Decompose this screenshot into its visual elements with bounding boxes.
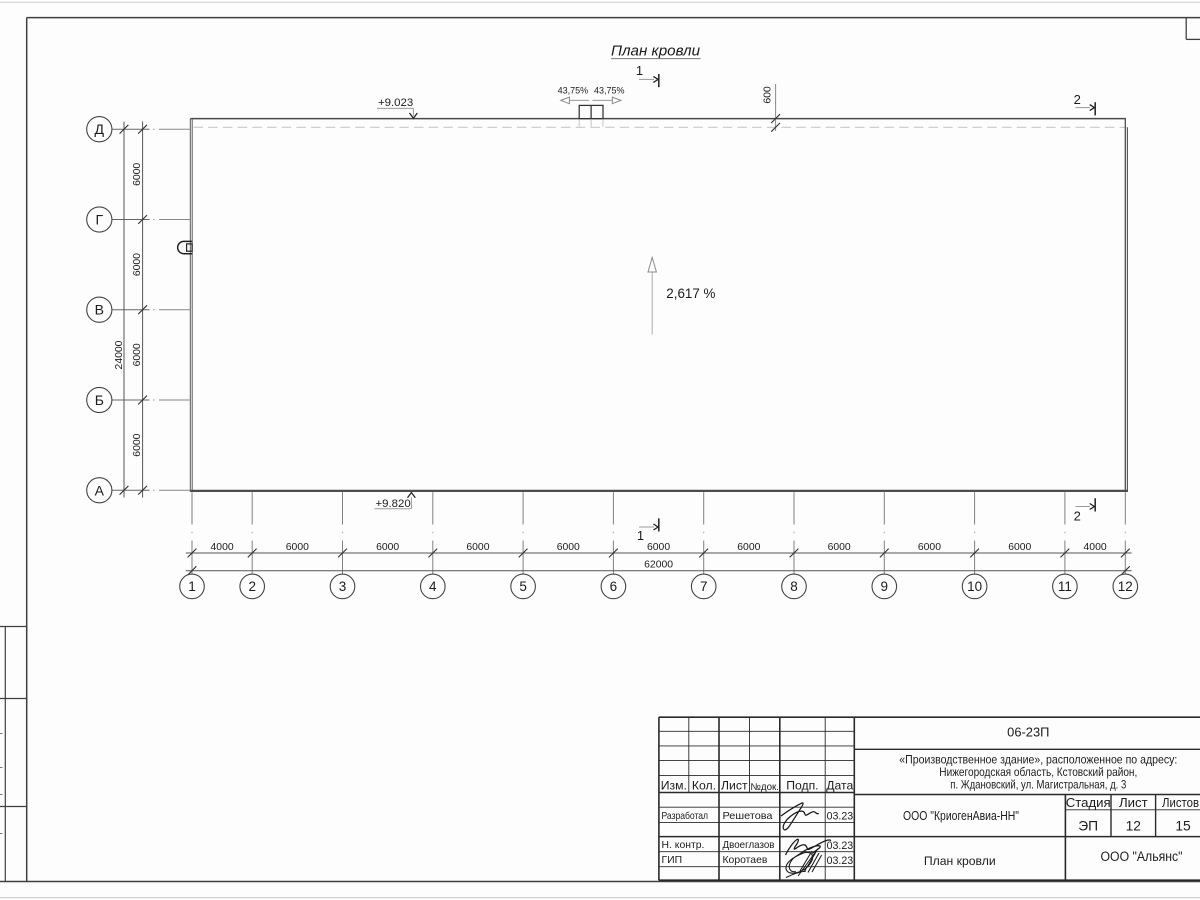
- svg-text:Решетова: Решетова: [723, 811, 773, 822]
- svg-text:12: 12: [1118, 579, 1133, 594]
- svg-text:Лист: Лист: [1119, 795, 1148, 810]
- svg-text:03.23: 03.23: [827, 855, 854, 867]
- svg-text:А: А: [95, 482, 105, 498]
- svg-text:9: 9: [881, 579, 889, 594]
- svg-text:2: 2: [248, 579, 256, 594]
- svg-text:12: 12: [1126, 819, 1141, 834]
- svg-text:03.23: 03.23: [827, 840, 854, 852]
- svg-text:6000: 6000: [286, 542, 309, 553]
- svg-text:Двоеглазов: Двоеглазов: [723, 840, 775, 851]
- svg-text:ООО "Альянс": ООО "Альянс": [1101, 849, 1183, 865]
- svg-text:6000: 6000: [647, 542, 670, 553]
- svg-text:Г: Г: [96, 212, 104, 228]
- svg-text:2: 2: [1074, 92, 1081, 107]
- svg-text:ГИП: ГИП: [662, 855, 683, 866]
- svg-text:6000: 6000: [1008, 542, 1031, 553]
- svg-text:План кровли: План кровли: [611, 43, 701, 60]
- svg-text:План кровли: План кровли: [924, 854, 996, 868]
- svg-text:43,75%: 43,75%: [594, 85, 625, 95]
- svg-text:8: 8: [790, 579, 798, 594]
- svg-text:Листов: Листов: [1162, 795, 1199, 810]
- svg-text:7: 7: [700, 579, 708, 594]
- svg-text:1: 1: [188, 579, 196, 594]
- svg-text:Разработал: Разработал: [662, 810, 709, 822]
- svg-text:1: 1: [637, 528, 644, 543]
- svg-text:Дата: Дата: [826, 778, 853, 792]
- svg-text:Коротаев: Коротаев: [723, 855, 768, 866]
- svg-text:43,75%: 43,75%: [558, 85, 589, 95]
- svg-text:+9.023: +9.023: [378, 97, 413, 109]
- svg-text:03.23: 03.23: [827, 811, 854, 823]
- svg-text:6: 6: [610, 579, 618, 594]
- svg-text:п. Ждановский, ул. Магистральн: п. Ждановский, ул. Магистральная, д. 3: [950, 777, 1126, 791]
- svg-text:10: 10: [967, 579, 982, 594]
- svg-text:2,617 %: 2,617 %: [666, 286, 715, 301]
- svg-text:ЭП: ЭП: [1078, 819, 1098, 834]
- svg-text:ООО "КриогенАвиа-НН": ООО "КриогенАвиа-НН": [903, 809, 1019, 823]
- svg-text:Д: Д: [95, 121, 105, 137]
- svg-text:В: В: [95, 302, 104, 318]
- svg-text:Б: Б: [95, 392, 104, 408]
- svg-text:15: 15: [1175, 819, 1191, 834]
- svg-text:6000: 6000: [132, 433, 143, 456]
- svg-text:+9.820: +9.820: [376, 498, 411, 510]
- svg-text:6000: 6000: [737, 542, 760, 553]
- svg-text:№док.: №док.: [750, 782, 779, 793]
- svg-text:4000: 4000: [211, 542, 234, 553]
- svg-text:6000: 6000: [918, 542, 941, 553]
- svg-text:6000: 6000: [132, 253, 143, 276]
- svg-text:24000: 24000: [114, 340, 125, 369]
- svg-text:6000: 6000: [466, 542, 489, 553]
- svg-text:Подп.: Подп.: [786, 778, 818, 792]
- svg-text:6000: 6000: [376, 542, 399, 553]
- svg-text:6000: 6000: [132, 343, 143, 366]
- svg-text:62000: 62000: [644, 560, 673, 571]
- svg-text:600: 600: [763, 86, 774, 104]
- svg-text:Н. контр.: Н. контр.: [662, 840, 705, 851]
- svg-text:Стадия: Стадия: [1066, 795, 1111, 810]
- svg-text:5: 5: [519, 579, 527, 594]
- svg-text:4000: 4000: [1084, 542, 1107, 553]
- svg-text:11: 11: [1058, 579, 1072, 594]
- svg-text:Изм.: Изм.: [661, 778, 687, 792]
- svg-text:6000: 6000: [557, 542, 580, 553]
- svg-text:1: 1: [636, 63, 643, 78]
- svg-text:6000: 6000: [828, 542, 851, 553]
- svg-text:6000: 6000: [132, 163, 143, 186]
- svg-text:Лист: Лист: [721, 778, 748, 792]
- svg-text:06-23П: 06-23П: [1007, 724, 1049, 739]
- svg-text:Кол.: Кол.: [692, 778, 716, 792]
- svg-text:2: 2: [1074, 509, 1081, 524]
- svg-text:4: 4: [429, 579, 437, 594]
- svg-text:3: 3: [339, 579, 347, 594]
